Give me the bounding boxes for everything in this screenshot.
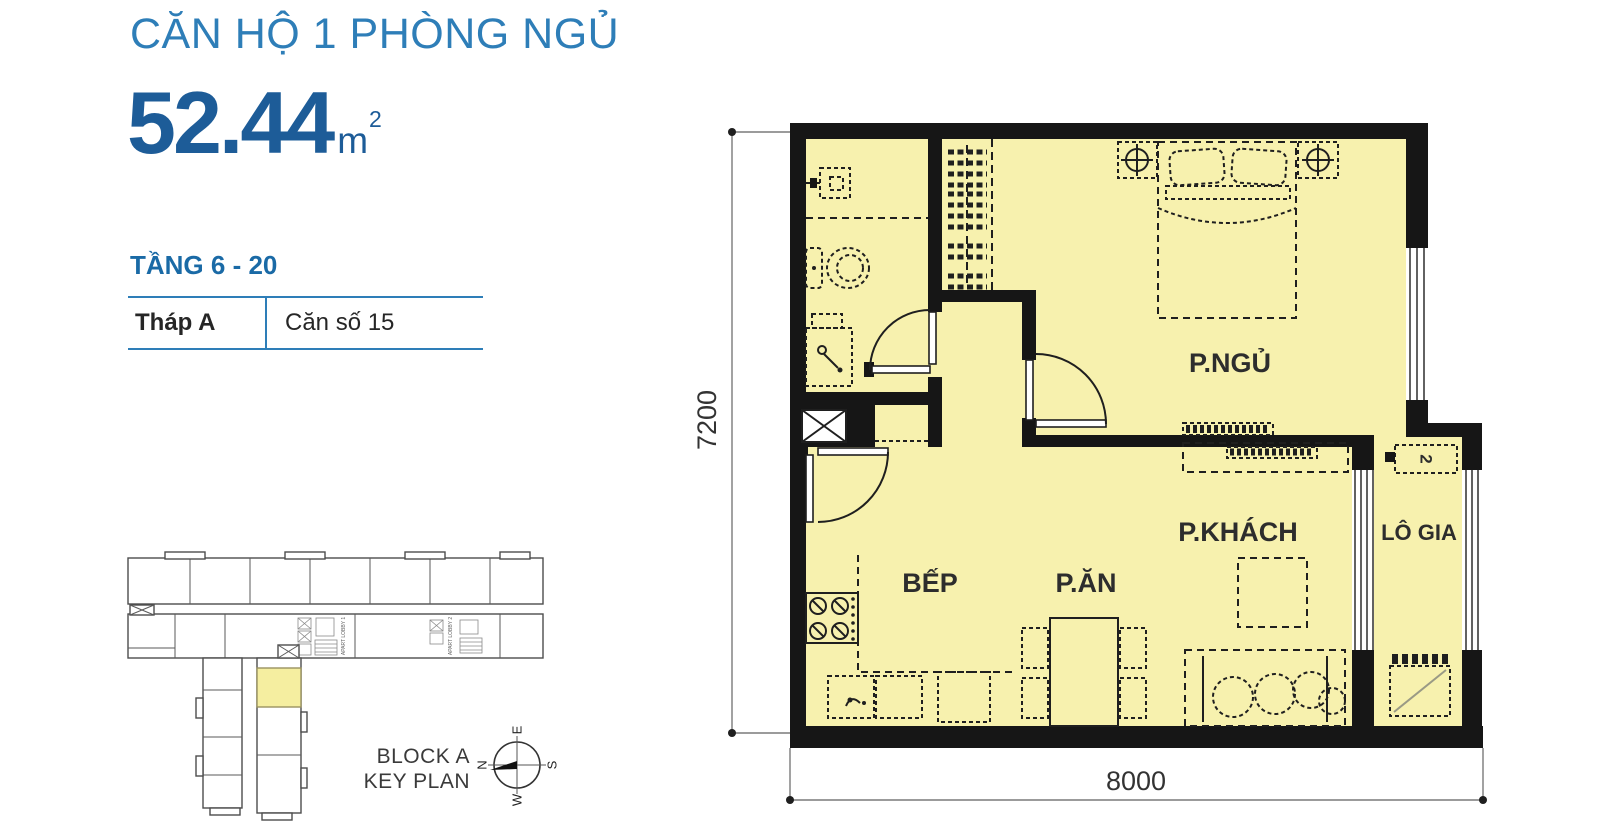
highlighted-unit: [257, 668, 301, 707]
keyplan-caption-line2: KEY PLAN: [364, 770, 470, 793]
area-unit: m: [337, 120, 368, 162]
area-superscript: 2: [369, 106, 382, 133]
lobby1-label: APART LOBBY 1: [341, 617, 347, 655]
key-plan: APART LOBBY 1 APART LOBBY 2: [110, 530, 670, 830]
tower-cell: Tháp A: [128, 298, 265, 348]
keyplan-caption-line1: BLOCK A: [377, 745, 470, 768]
area-figure: 52.44 m 2: [127, 72, 382, 174]
keyplan-building: APART LOBBY 1 APART LOBBY 2: [128, 552, 543, 820]
page-title: CĂN HỘ 1 PHÒNG NGỦ: [130, 10, 619, 59]
compass-south: S: [545, 760, 560, 769]
keyplan-caption: BLOCK A KEY PLAN: [364, 745, 470, 793]
lobby2-label: APART LOBBY 2: [448, 617, 454, 655]
dim-height: 7200: [692, 390, 722, 450]
loggia-equipment-tag: 2: [1417, 454, 1436, 463]
compass-west: W: [510, 793, 525, 806]
compass: N E S W: [475, 725, 560, 806]
floorplan-poster: CĂN HỘ 1 PHÒNG NGỦ 52.44 m 2 TẦNG 6 - 20…: [0, 0, 1600, 835]
label-kitchen: BẾP: [902, 567, 958, 598]
compass-east: E: [510, 725, 525, 734]
label-living: P.KHÁCH: [1178, 516, 1298, 547]
floor-plan: 2 P.NGỦ P.KHÁCH P.ĂN BẾP LÔ GIA 7200: [690, 95, 1510, 815]
dim-width: 8000: [1106, 766, 1166, 796]
unit-number-cell: Căn số 15: [265, 298, 483, 348]
floor-range-label: TẦNG 6 - 20: [130, 250, 277, 281]
label-loggia: LÔ GIA: [1381, 520, 1457, 545]
service-shaft: [802, 410, 846, 442]
area-value: 52.44: [127, 72, 332, 174]
label-bedroom: P.NGỦ: [1189, 346, 1271, 378]
compass-north: N: [475, 760, 490, 769]
tower-unit-table: Tháp A Căn số 15: [128, 296, 483, 350]
label-dining: P.ĂN: [1055, 567, 1116, 598]
